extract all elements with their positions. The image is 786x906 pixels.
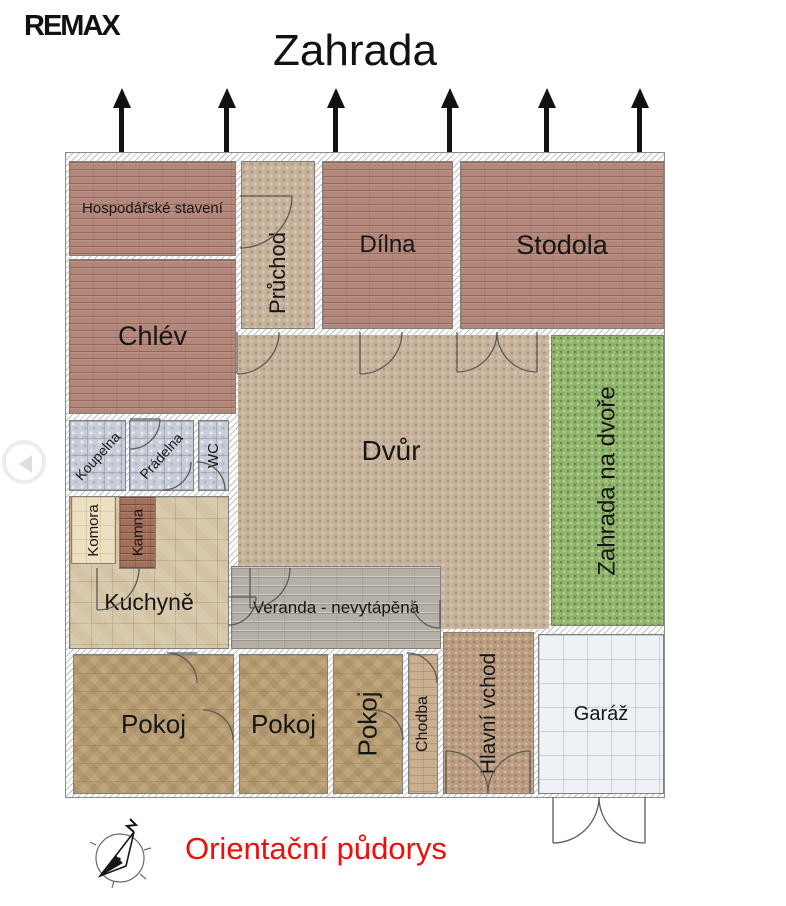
arrow-shaft (224, 105, 229, 152)
room-label: Komora (86, 504, 101, 557)
room-dilna: Dílna (322, 161, 453, 329)
north-arrow-icon (327, 88, 345, 152)
room-label: Stodola (516, 232, 608, 259)
room-chodba: Chodba (408, 654, 438, 794)
room-label: Pokoj (251, 711, 316, 737)
room-wc: WC (198, 420, 229, 491)
room-label: Chlév (118, 323, 187, 350)
arrow-shaft (447, 105, 452, 152)
room-pokoj-2: Pokoj (239, 654, 328, 794)
room-pruchod: Průchod (241, 161, 315, 329)
chevron-left-icon (19, 455, 32, 473)
room-hlavni-vchod: Hlavní vchod (443, 632, 534, 794)
room-label: Chodba (415, 696, 431, 752)
north-arrow-icon (631, 88, 649, 152)
room-chlev: Chlév (69, 259, 236, 414)
floor-plan-page: REMAX Zahrada Hospodářské stavení Chlév … (0, 0, 786, 906)
room-stodola: Stodola (460, 161, 664, 329)
room-pokoj-1: Pokoj (73, 654, 234, 794)
room-label: Prádelna (138, 430, 186, 481)
room-label: Veranda - nevytápěná (253, 599, 419, 616)
room-koupelna: Koupelna (69, 420, 126, 491)
room-komora: Komora (71, 496, 116, 564)
north-arrow-icon (538, 88, 556, 152)
room-label: Kamna (130, 509, 145, 557)
room-label: Hlavní vchod (478, 652, 499, 773)
room-label: Hospodářské stavení (82, 201, 223, 216)
prev-arrow-button[interactable] (2, 440, 46, 484)
plan-caption: Orientační půdorys (185, 831, 447, 867)
room-label: Kuchyně (104, 591, 194, 614)
room-label: Pokoj (355, 691, 381, 756)
room-label: WC (206, 443, 221, 468)
room-label: Pokoj (121, 711, 186, 737)
room-zahrada-na-dvore: Zahrada na dvoře (551, 335, 664, 626)
garden-label: Zahrada (230, 26, 480, 76)
arrow-shaft (119, 105, 124, 152)
room-pradelna: Prádelna (129, 420, 194, 491)
north-arrow-icon (218, 88, 236, 152)
room-label: Průchod (267, 232, 289, 314)
north-arrow-icon (441, 88, 459, 152)
room-label: Zahrada na dvoře (596, 386, 620, 575)
room-hospodarske-staveni: Hospodářské stavení (69, 161, 236, 256)
room-veranda: Veranda - nevytápěná (231, 566, 441, 649)
room-pokoj-3: Pokoj (333, 654, 403, 794)
remax-logo: REMAX (24, 10, 119, 43)
room-garaz: Garáž (538, 634, 664, 794)
room-label: Dílna (359, 233, 415, 257)
room-kamna: Kamna (119, 496, 156, 569)
north-arrow-icon (113, 88, 131, 152)
room-label: Garáž (574, 704, 628, 724)
floor-plan: Hospodářské stavení Chlév Průchod Dílna … (65, 152, 665, 798)
compass-rose-icon (88, 818, 156, 890)
room-label: Koupelna (73, 429, 123, 482)
arrow-shaft (637, 105, 642, 152)
arrow-shaft (333, 105, 338, 152)
room-label: Dvůr (361, 437, 420, 465)
arrow-shaft (544, 105, 549, 152)
